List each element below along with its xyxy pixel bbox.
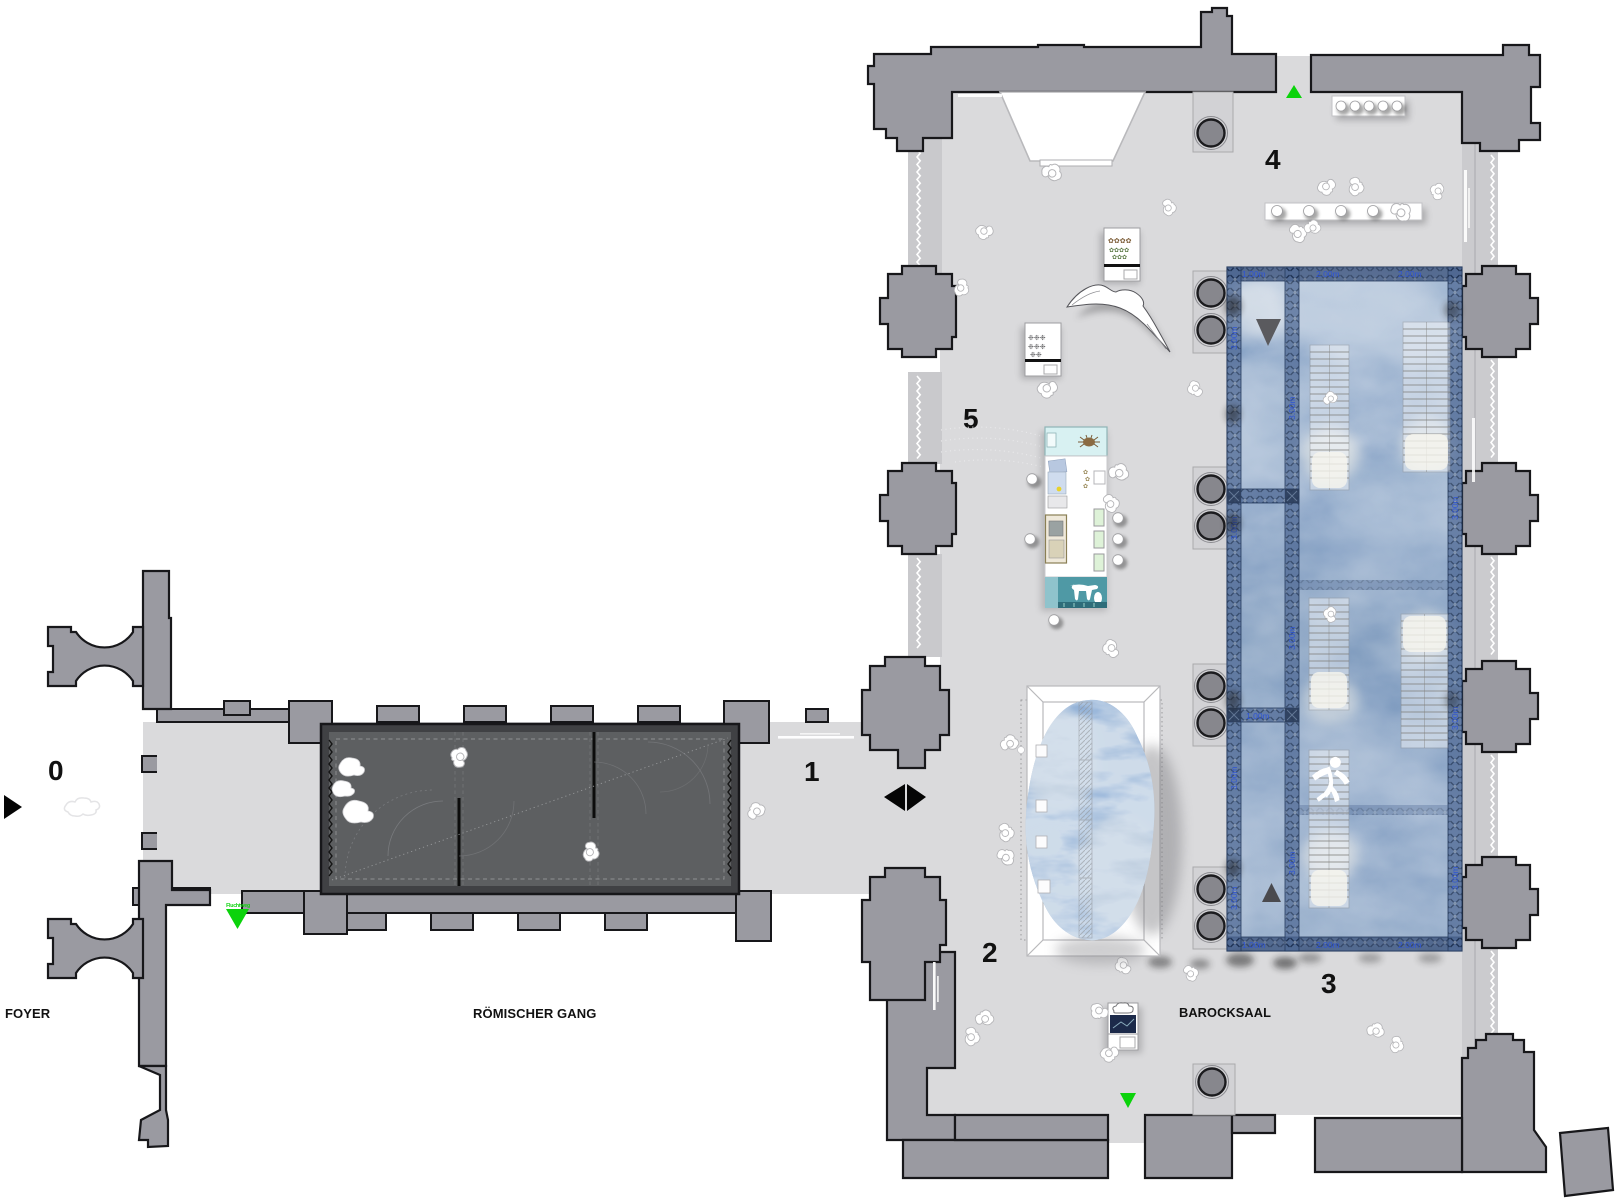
svg-text:❉❉❉: ❉❉❉ bbox=[1028, 343, 1046, 351]
svg-text:3: 3 bbox=[1321, 968, 1337, 999]
svg-text:3.00m: 3.00m bbox=[1229, 886, 1239, 910]
svg-text:1.00m: 1.00m bbox=[1246, 711, 1270, 721]
svg-text:3.00m: 3.00m bbox=[1229, 326, 1239, 350]
svg-text:5: 5 bbox=[963, 403, 979, 434]
svg-text:4: 4 bbox=[1265, 144, 1281, 175]
svg-text:3.00m: 3.00m bbox=[1450, 496, 1460, 520]
svg-text:RÖMISCHER GANG: RÖMISCHER GANG bbox=[473, 1006, 596, 1021]
svg-text:Fluchtweg: Fluchtweg bbox=[226, 903, 250, 909]
svg-text:BAROCKSAAL: BAROCKSAAL bbox=[1179, 1005, 1271, 1020]
svg-text:3.00m: 3.00m bbox=[1229, 766, 1239, 790]
svg-text:1.00m: 1.00m bbox=[1242, 269, 1266, 279]
svg-text:FOYER: FOYER bbox=[5, 1006, 51, 1021]
svg-text:3.00m: 3.00m bbox=[1450, 866, 1460, 890]
svg-text:3.00m: 3.00m bbox=[1287, 396, 1297, 420]
svg-text:❉❉: ❉❉ bbox=[1030, 351, 1042, 359]
svg-text:❉❉❉: ❉❉❉ bbox=[1028, 334, 1046, 342]
svg-text:0: 0 bbox=[48, 755, 64, 786]
svg-text:✿: ✿ bbox=[1085, 476, 1090, 483]
svg-text:1: 1 bbox=[804, 756, 820, 787]
svg-text:1.00m: 1.00m bbox=[1242, 940, 1266, 950]
svg-text:2.00m: 2.00m bbox=[1316, 269, 1340, 279]
svg-text:✿✿✿: ✿✿✿ bbox=[1112, 254, 1127, 261]
svg-text:2.00m: 2.00m bbox=[1398, 269, 1422, 279]
svg-text:3.00m: 3.00m bbox=[1287, 851, 1297, 875]
svg-text:✿✿✿✿: ✿✿✿✿ bbox=[1108, 238, 1132, 245]
svg-text:2.00m: 2.00m bbox=[1316, 940, 1340, 950]
svg-text:✿: ✿ bbox=[1083, 483, 1088, 490]
svg-text:✿: ✿ bbox=[1083, 469, 1088, 476]
svg-text:2: 2 bbox=[982, 937, 998, 968]
svg-text:2.00m: 2.00m bbox=[1398, 940, 1422, 950]
svg-text:3.00m: 3.00m bbox=[1450, 706, 1460, 730]
svg-text:✿✿✿✿: ✿✿✿✿ bbox=[1109, 247, 1129, 254]
svg-text:3.00m: 3.00m bbox=[1287, 626, 1297, 650]
